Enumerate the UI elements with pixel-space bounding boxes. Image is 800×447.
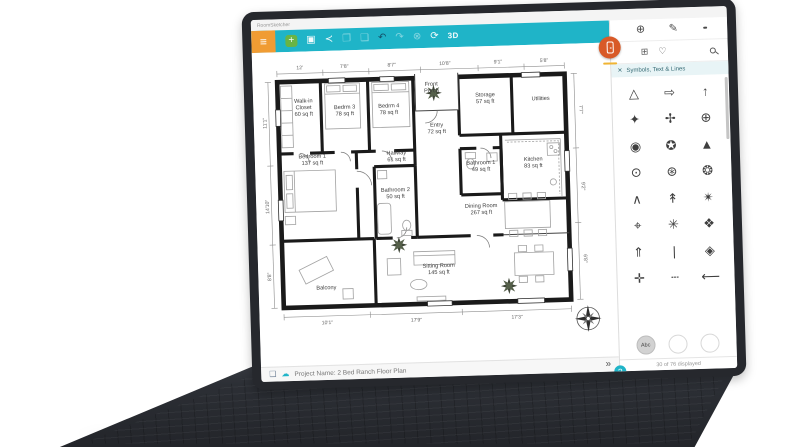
delete-icon[interactable]: ⊗ (413, 32, 422, 42)
save-icon[interactable]: ▣ (306, 35, 316, 45)
north-arrow-glyph: ⇑ (633, 245, 644, 258)
triangle-circle-glyph: ◉ (630, 139, 642, 152)
dimension-label: 12' (296, 65, 303, 71)
compass-rose (574, 305, 601, 332)
room-label: Hallway61 sq ft (386, 150, 406, 163)
scrollbar[interactable] (725, 77, 730, 139)
symbol-line-arrow[interactable]: ⟵ (692, 263, 728, 291)
symbol-line-dashed[interactable]: ┄ (657, 264, 693, 292)
door-swings (299, 109, 494, 253)
dimension-label: 9'1" (494, 59, 503, 65)
room-label: Sitting Room145 sq ft (423, 263, 456, 277)
dimension-label: 14'10" (265, 199, 271, 214)
symbol-star-in-circle[interactable]: ✪ (653, 131, 689, 159)
rotate-icon[interactable]: ⟳ (430, 32, 439, 42)
question-icon: ? (618, 367, 623, 376)
room-label: Bathroom 149 sq ft (466, 160, 495, 173)
copy-icon[interactable]: ❐ (342, 34, 351, 44)
arrow-solid-glyph: ▲ (700, 137, 713, 150)
room-label: Entry72 sq ft (427, 122, 446, 135)
star-in-circle-glyph: ✪ (665, 138, 676, 151)
circle-blank-2-button[interactable] (701, 333, 721, 353)
symbol-line-vertical[interactable]: | (656, 237, 692, 265)
needle-up-glyph: ↟ (667, 191, 678, 204)
sidebar-categories: ⊞ ♡ (611, 39, 729, 64)
room-label: Bedrm 378 sq ft (334, 104, 356, 117)
arrow-up-thin-glyph: ↑ (702, 84, 709, 97)
diamond-faded-glyph: ◈ (705, 243, 715, 256)
circle-arrow-3-glyph: ❂ (702, 164, 713, 177)
symbol-anchor-point[interactable]: ⌖ (620, 212, 656, 240)
panel-title: Symbols, Text & Lines (626, 66, 685, 74)
symbol-triangle-circle[interactable]: ◉ (617, 132, 653, 160)
active-category-indicator (603, 62, 617, 65)
project-name-label: Project Name: 2 Bed Ranch Floor Plan (294, 367, 406, 377)
dim-labels-top: 12'7'8"8'7"10'8"9'1"5'8" (296, 58, 548, 71)
dimension-label: 7'8" (340, 64, 349, 70)
sidebar-footer: 30 of 76 displayed (620, 356, 737, 371)
dimension-label: 8'8" (267, 272, 273, 281)
star-cross-glyph: ✛ (634, 272, 645, 285)
symbol-arrow-up-thin[interactable]: ↑ (687, 77, 723, 105)
symbol-circle-cross[interactable]: ⊕ (688, 104, 724, 132)
dimension-label: 10'1" (322, 320, 334, 326)
laptop-screen: RoomSketcher ≡ +▣≺❐❏↶↷⊗⟳3D (242, 0, 747, 390)
circle-blank-1-button[interactable] (668, 334, 688, 354)
compass-rose-glyph: ✳ (668, 218, 679, 231)
room-label: Bedroom 1137 sq ft (298, 154, 326, 167)
undo-icon[interactable]: ↶ (378, 33, 387, 43)
room-label: Bathroom 250 sq ft (381, 187, 410, 200)
favorites-icon[interactable]: ♡ (658, 47, 666, 56)
symbol-style-buttons: Abc (619, 329, 737, 359)
cloud-sync-icon[interactable]: ☁ (281, 370, 289, 378)
search-icon[interactable] (710, 47, 716, 53)
symbol-compass-rose-detailed[interactable]: ❖ (691, 210, 727, 238)
symbol-circle-arrow-2[interactable]: ⊛ (654, 158, 690, 186)
line-vertical-glyph: | (672, 244, 676, 257)
hamburger-icon: ≡ (260, 35, 267, 49)
symbol-north-arrow[interactable]: ⇑ (620, 238, 656, 266)
circle-arrow-2-glyph: ⊛ (666, 165, 677, 178)
symbol-star-4-point[interactable]: ✦ (616, 106, 652, 134)
door-icon (606, 41, 613, 53)
dimension-label: 17'3" (511, 314, 523, 320)
anchor-point-glyph: ⌖ (634, 219, 642, 232)
circle-arrow-1-glyph: ⊙ (631, 166, 642, 179)
displayed-count-label: 30 of 76 displayed (656, 360, 701, 367)
room-label: Walk-inCloset60 sq ft (294, 98, 313, 118)
symbol-grid: △⇨↑✦✢⊕◉✪▲⊙⊛❂∧↟✴⌖✳❖⇑|◈✛┄⟵ (612, 74, 737, 332)
symbol-triangle-outline[interactable]: △ (616, 79, 652, 107)
symbol-compass-rose[interactable]: ✳ (655, 211, 691, 239)
room-label: Utilities (531, 96, 549, 103)
sidebar: ⊕ ✎ ⊞ ♡ ✕ Symb (609, 17, 737, 371)
toolbar-icons: +▣≺❐❏↶↷⊗⟳3D (275, 30, 459, 47)
room-label: Dining Room267 sq ft (465, 203, 498, 217)
dimension-label: 5'8" (540, 58, 549, 64)
symbol-arrow-solid[interactable]: ▲ (689, 130, 725, 158)
symbol-chevron-north[interactable]: ∧ (619, 185, 655, 213)
floorplan-canvas[interactable]: Walk-inCloset60 sq ftBedrm 378 sq ftBedr… (252, 43, 619, 367)
compass-rose-detailed-glyph: ❖ (703, 217, 715, 230)
symbol-diamond-faded[interactable]: ◈ (692, 236, 728, 264)
room-label: FrontPorch (424, 81, 439, 94)
close-icon[interactable]: ✕ (617, 67, 622, 74)
star-4-point-glyph: ✦ (629, 113, 640, 126)
compass-cross-glyph: ✢ (665, 112, 676, 125)
paste-icon[interactable]: ❏ (360, 34, 369, 44)
collapse-panel-button[interactable]: » (605, 360, 611, 370)
app-window: RoomSketcher ≡ +▣≺❐❏↶↷⊗⟳3D (251, 6, 738, 382)
circle-cross-glyph: ⊕ (700, 111, 711, 124)
arrow-right-outline-glyph: ⇨ (664, 85, 675, 98)
view-3d-icon[interactable]: 3D (448, 32, 459, 40)
floorplan-drawing: Walk-inCloset60 sq ftBedrm 378 sq ftBedr… (256, 47, 609, 350)
symbol-radiant-star[interactable]: ✴ (690, 183, 726, 211)
furniture-badge[interactable] (598, 36, 621, 59)
room-label: Bedrm 478 sq ft (378, 103, 400, 116)
room-label: Storage57 sq ft (475, 92, 495, 105)
line-arrow-glyph: ⟵ (701, 270, 720, 284)
add-item-tab[interactable]: ⊕ (636, 24, 646, 35)
line-dashed-glyph: ┄ (671, 271, 679, 284)
room-label: Balcony (316, 285, 336, 292)
symbol-star-cross[interactable]: ✛ (621, 265, 657, 293)
chevron-north-glyph: ∧ (632, 192, 642, 205)
draw-tab[interactable]: ✎ (669, 23, 679, 34)
dimension-label: 6'8" (582, 254, 588, 263)
dim-labels-bottom: 10'1"17'9"17'3" (322, 314, 523, 326)
menu-button[interactable]: ≡ (251, 30, 276, 53)
window-title: RoomSketcher (257, 21, 290, 28)
symbol-needle-up[interactable]: ↟ (654, 184, 690, 212)
grid-category-icon[interactable]: ⊞ (641, 47, 649, 56)
symbol-arrow-right-outline[interactable]: ⇨ (651, 78, 687, 106)
room-label: Kitchen83 sq ft (524, 156, 543, 169)
dimension-label: 8'7" (387, 62, 396, 68)
dimension-label: 9'2" (580, 182, 586, 191)
help-button[interactable]: ? (614, 365, 626, 377)
triangle-outline-glyph: △ (629, 86, 639, 99)
dimension-label: 17'9" (411, 317, 423, 323)
share-icon[interactable]: ≺ (325, 35, 334, 45)
redo-icon[interactable]: ↷ (395, 33, 404, 43)
page-icon[interactable]: ❑ (269, 371, 276, 379)
symbol-compass-cross[interactable]: ✢ (652, 105, 688, 133)
scene: RoomSketcher ≡ +▣≺❐❏↶↷⊗⟳3D (0, 0, 800, 447)
text-abc-button[interactable]: Abc (636, 335, 656, 355)
symbol-circle-arrow-3[interactable]: ❂ (689, 157, 725, 185)
dimension-label: 7'7" (577, 105, 583, 114)
dimension-label: 11'1" (262, 118, 268, 129)
dimension-label: 10'8" (439, 61, 451, 67)
symbol-circle-arrow-1[interactable]: ⊙ (618, 159, 654, 187)
new-project-icon[interactable]: + (285, 35, 297, 47)
radiant-star-glyph: ✴ (703, 190, 714, 203)
